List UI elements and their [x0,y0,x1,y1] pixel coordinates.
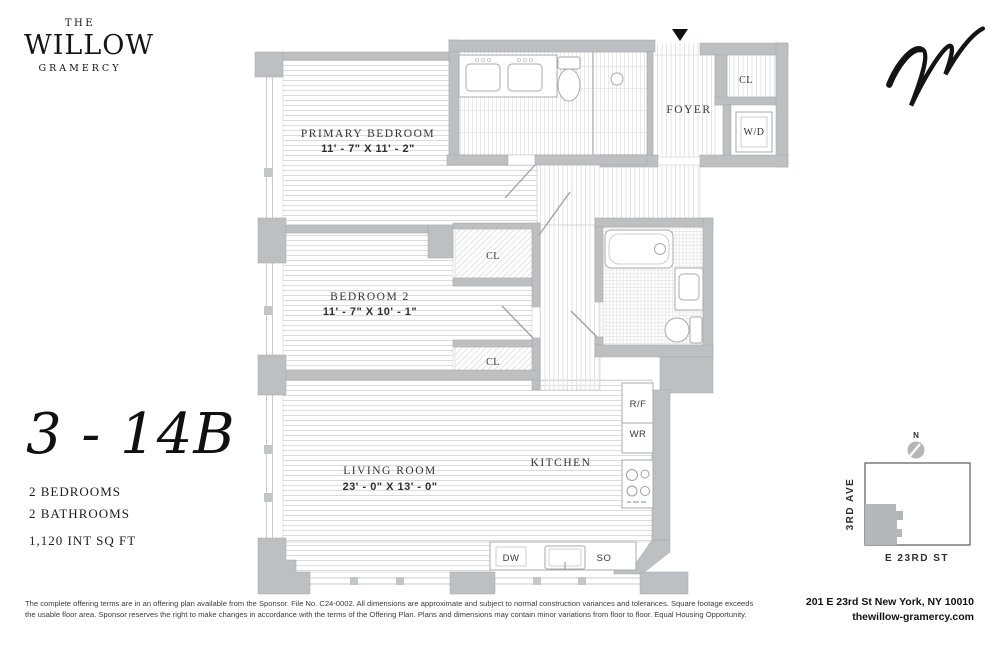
bedroom2-label: BEDROOM 2 [330,291,410,303]
toilet-bowl [558,69,580,101]
living-room-label: LIVING ROOM [343,465,436,477]
entrance-arrow-icon [672,29,688,41]
disclaimer-line-2: the usable floor area. Sponsor reserves … [25,610,773,621]
cooktop-controls [627,501,646,503]
closet-upper-label: CL [486,251,500,262]
toilet-tank [558,57,580,69]
entry-threshold [655,43,700,55]
bedroom2-dims: 11' - 7" X 10' - 1" [323,306,417,318]
compass-north-label: N [913,431,919,440]
website: thewillow-gramercy.com [806,610,974,625]
primary-bedroom-dims: 11' - 7" X 11' - 2" [321,143,415,155]
kitchen-label: KITCHEN [531,457,592,469]
washer-dryer-label: W/D [744,127,765,138]
floor-plan: PRIMARY BEDROOM 11' - 7" X 11' - 2" BEDR… [0,0,1000,647]
map-street-label: E 23RD ST [885,553,949,564]
closet-lower-label: CL [486,357,500,368]
wine-fridge-label: WR [630,429,647,440]
bath2-toilet-tank [690,317,702,343]
map-avenue-label: 3RD AVE [845,478,856,531]
shower-head [611,73,623,85]
location-map: N 3RD AVE E 23RD ST [845,431,970,564]
cooktop-box [622,460,653,508]
foyer-label: FOYER [666,104,711,116]
disclaimer-line-1: The complete offering terms are in an of… [25,599,773,610]
tub-drain [655,244,666,255]
address-block: 201 E 23rd St New York, NY 10010 thewill… [806,595,974,624]
upper-hall-floor [537,165,700,225]
sink-right [508,64,542,91]
living-kitchen-floor [283,380,652,542]
dishwasher-label: DW [503,553,520,564]
disclaimer: The complete offering terms are in an of… [25,599,773,620]
living-floor-bottom [283,542,490,572]
hall-floor [540,225,600,390]
living-room-dims: 23' - 0" X 13' - 0" [343,481,438,493]
stove-oven-label: SO [597,553,612,564]
refrigerator-label: R/F [630,399,647,410]
bath2-sink [679,274,699,300]
primary-bedroom-label: PRIMARY BEDROOM [301,128,435,140]
address: 201 E 23rd St New York, NY 10010 [806,595,974,610]
foyer-closet-label: CL [739,75,753,86]
sink-left [466,64,500,91]
bath2-toilet-bowl [665,318,689,342]
